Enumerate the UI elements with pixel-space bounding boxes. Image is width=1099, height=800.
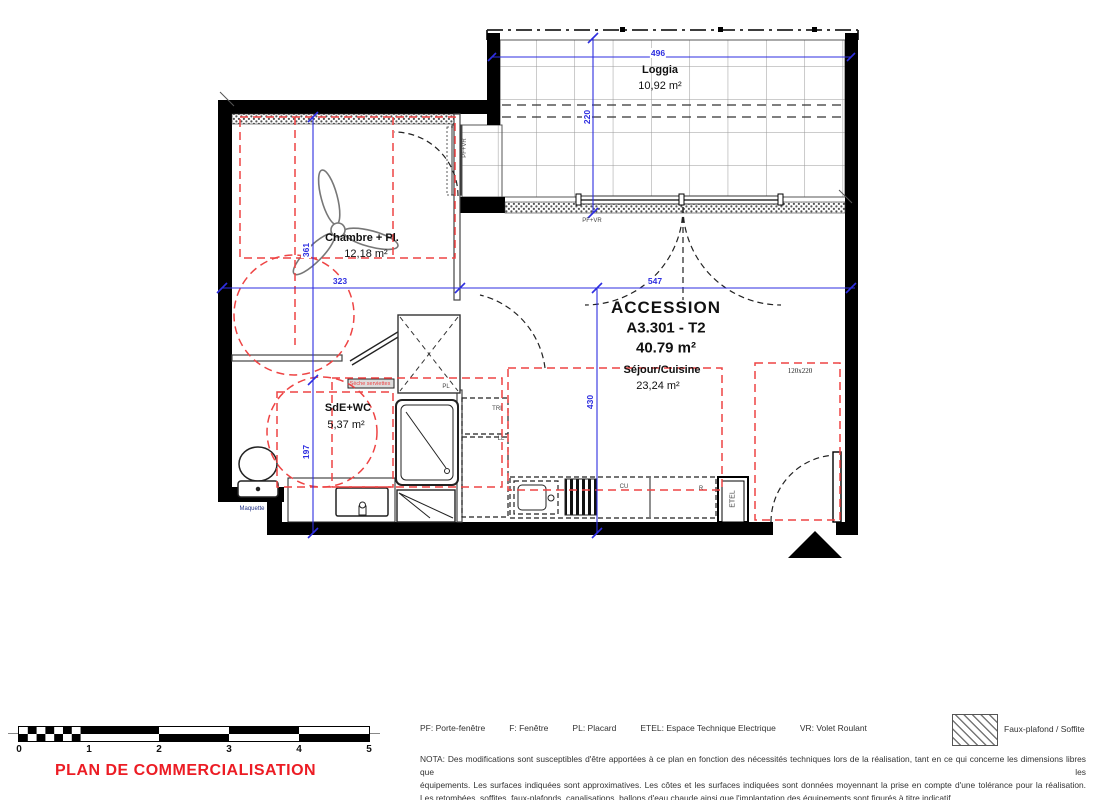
scale-seg-3	[229, 727, 299, 741]
cu-label: CU	[620, 484, 629, 490]
dim-loggia-width: 496	[650, 48, 666, 58]
placard-icon	[398, 315, 460, 393]
scale-bar	[18, 726, 370, 742]
chambre-area: 12,18 m²	[344, 248, 387, 260]
entrance-triangle-icon	[788, 531, 842, 558]
sejour-area: 23,24 m²	[636, 380, 679, 392]
legend-item-f: F: Fenêtre	[509, 723, 548, 733]
scale-seg-2	[159, 727, 229, 741]
maquette-label: Maquette	[239, 506, 264, 512]
scale-seg-4	[299, 727, 369, 741]
faux-plafond-hatch-icon	[952, 714, 998, 746]
floor-plan-page: Loggia 10,92 m² Chambre + Pl. 12,18 m² A…	[0, 0, 1099, 800]
loggia-area: 10,92 m²	[638, 80, 681, 92]
nota-line-3: Les retombées, soffites, faux-plafonds, …	[420, 792, 1086, 800]
scale-tick-2: 2	[156, 744, 162, 755]
pf-vr-side-label: PF+VR	[462, 138, 468, 158]
legend-item-vr: VR: Volet Roulant	[800, 723, 867, 733]
ll-label: LL	[498, 436, 505, 442]
shower-icon	[396, 400, 458, 485]
ceiling-fan-icon	[289, 168, 400, 279]
tri-label: TRI	[492, 406, 502, 412]
scale-tick-4: 4	[296, 744, 302, 755]
chambre-name: Chambre + Pl.	[325, 232, 399, 244]
pf-vr-label: PF+VR	[582, 218, 602, 224]
scale-tick-5: 5	[366, 744, 372, 755]
sejour-name: Séjour/Cuisine	[623, 364, 700, 376]
scale-tick-3: 3	[226, 744, 232, 755]
dim-sejour-height: 430	[585, 394, 595, 410]
legend-item-pf: PF: Porte-fenêtre	[420, 723, 485, 733]
dim-chambre-width: 323	[332, 276, 348, 286]
etel-label: ETEL	[730, 490, 737, 508]
seche-serviettes-label: Sèche serviettes	[350, 381, 391, 387]
dim-sejour-width: 547	[647, 276, 663, 286]
legend-item-pl: PL: Placard	[572, 723, 616, 733]
window-sejour	[576, 194, 783, 205]
sde-name: SdE+WC	[325, 402, 371, 414]
sde-area: 5,37 m²	[327, 419, 364, 431]
nota-line-2: équipements. Les surfaces indiquées sont…	[420, 779, 1086, 792]
scale-tick-1: 1	[86, 744, 92, 755]
r-label: R	[699, 486, 703, 492]
unit-area: 40.79 m²	[636, 340, 696, 357]
scale-tick-0: 0	[16, 744, 22, 755]
unit-lot: A3.301 - T2	[626, 320, 705, 337]
loggia-name: Loggia	[642, 64, 678, 76]
floor-plan-canvas	[0, 0, 1099, 700]
dim-chambre-height: 361	[301, 242, 311, 258]
dim-loggia-depth: 220	[582, 109, 592, 125]
door-size-label: 120x220	[788, 367, 813, 375]
dim-sde-height: 197	[301, 444, 311, 460]
pl-label: PL	[442, 384, 449, 390]
plan-title: PLAN DE COMMERCIALISATION	[55, 762, 316, 780]
legend-item-etel: ETEL: Espace Technique Electrique	[640, 723, 775, 733]
nota-line-1: NOTA: Des modifications sont susceptible…	[420, 753, 1086, 779]
scale-seg-0	[19, 727, 89, 741]
faux-plafond-hatch-label: Faux-plafond / Soffite	[1004, 724, 1085, 734]
unit-program: ACCESSION	[611, 298, 721, 318]
scale-seg-1	[89, 727, 159, 741]
kitchen-fixtures	[518, 478, 650, 517]
nota-block: NOTA: Des modifications sont susceptible…	[420, 753, 1086, 800]
legend-abbreviations: PF: Porte-fenêtre F: Fenêtre PL: Placard…	[420, 723, 867, 733]
